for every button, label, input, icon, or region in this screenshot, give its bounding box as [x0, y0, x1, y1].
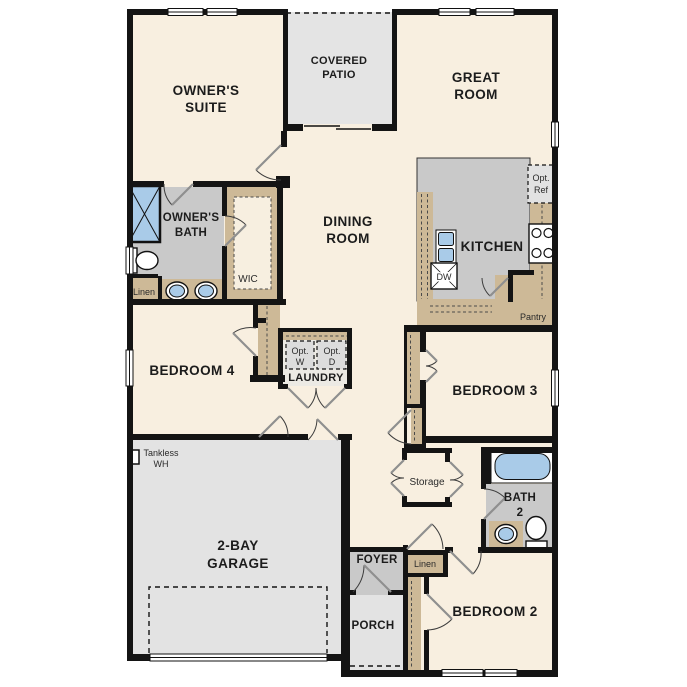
- kitchen-sink-icon: [436, 230, 456, 264]
- label-opt-w: Opt.: [291, 346, 308, 356]
- floor-plan: OWNER'S SUITE COVERED PATIO GREAT ROOM D…: [0, 0, 687, 687]
- label-opt-d-2: D: [329, 357, 336, 367]
- label-tankless-2: WH: [154, 459, 169, 469]
- label-great-room-2: ROOM: [454, 87, 498, 102]
- label-laundry: LAUNDRY: [288, 372, 344, 384]
- floor-plan-svg: OWNER'S SUITE COVERED PATIO GREAT ROOM D…: [0, 0, 687, 687]
- garage-door-opening: [150, 654, 327, 661]
- label-owners-bath: OWNER'S: [163, 212, 220, 224]
- opt-ref-box: [528, 165, 556, 203]
- label-tankless: Tankless: [143, 448, 179, 458]
- label-opt-d: Opt.: [323, 346, 340, 356]
- stove-icon: [529, 224, 556, 263]
- bath2-toilet-icon: [526, 517, 547, 550]
- bedroom3-closet: [407, 332, 420, 404]
- label-opt-w-2: W: [296, 357, 305, 367]
- opening-owners-bath: [164, 181, 193, 187]
- opening-front-door: [356, 590, 388, 595]
- room-porch: [349, 595, 404, 671]
- label-linen-owners: Linen: [133, 287, 155, 297]
- label-dining-room: DINING: [323, 214, 373, 229]
- label-bath2-2: 2: [517, 507, 524, 519]
- label-porch: PORCH: [351, 620, 394, 632]
- label-kitchen: KITCHEN: [461, 239, 524, 254]
- label-dw: DW: [437, 272, 452, 282]
- label-bedroom2: BEDROOM 2: [452, 604, 537, 619]
- label-covered-patio-2: PATIO: [322, 69, 356, 81]
- sliding-door-icon: [303, 124, 372, 131]
- label-garage-2: GARAGE: [207, 556, 269, 571]
- label-opt-ref: Opt.: [532, 173, 549, 183]
- label-bath2: BATH: [504, 492, 536, 504]
- bedroom2-closet: [407, 577, 421, 671]
- label-owners-bath-2: BATH: [175, 227, 207, 239]
- label-wic: WIC: [238, 274, 257, 285]
- label-pantry: Pantry: [520, 312, 547, 322]
- label-dining-room-2: ROOM: [326, 231, 370, 246]
- bath2-sink-icon: [495, 525, 517, 544]
- label-bedroom4: BEDROOM 4: [149, 363, 234, 378]
- label-storage: Storage: [409, 477, 444, 488]
- label-owners-suite: OWNER'S: [173, 83, 240, 98]
- label-linen-hall: Linen: [414, 559, 436, 569]
- opening-bedroom2: [453, 547, 478, 553]
- label-owners-suite-2: SUITE: [185, 100, 227, 115]
- label-bedroom3: BEDROOM 3: [452, 383, 537, 398]
- exterior-mask: [118, 661, 341, 687]
- label-opt-ref-2: Ref: [534, 185, 549, 195]
- bathtub-icon: [495, 454, 550, 480]
- label-garage: 2-BAY: [217, 538, 258, 553]
- hall-closet: [411, 408, 423, 445]
- shower-icon: [129, 186, 160, 242]
- label-foyer: FOYER: [356, 554, 398, 566]
- bedroom4-closet: [258, 303, 280, 379]
- label-covered-patio: COVERED: [311, 55, 368, 67]
- label-great-room: GREAT: [452, 70, 501, 85]
- room-pantry: [495, 275, 555, 301]
